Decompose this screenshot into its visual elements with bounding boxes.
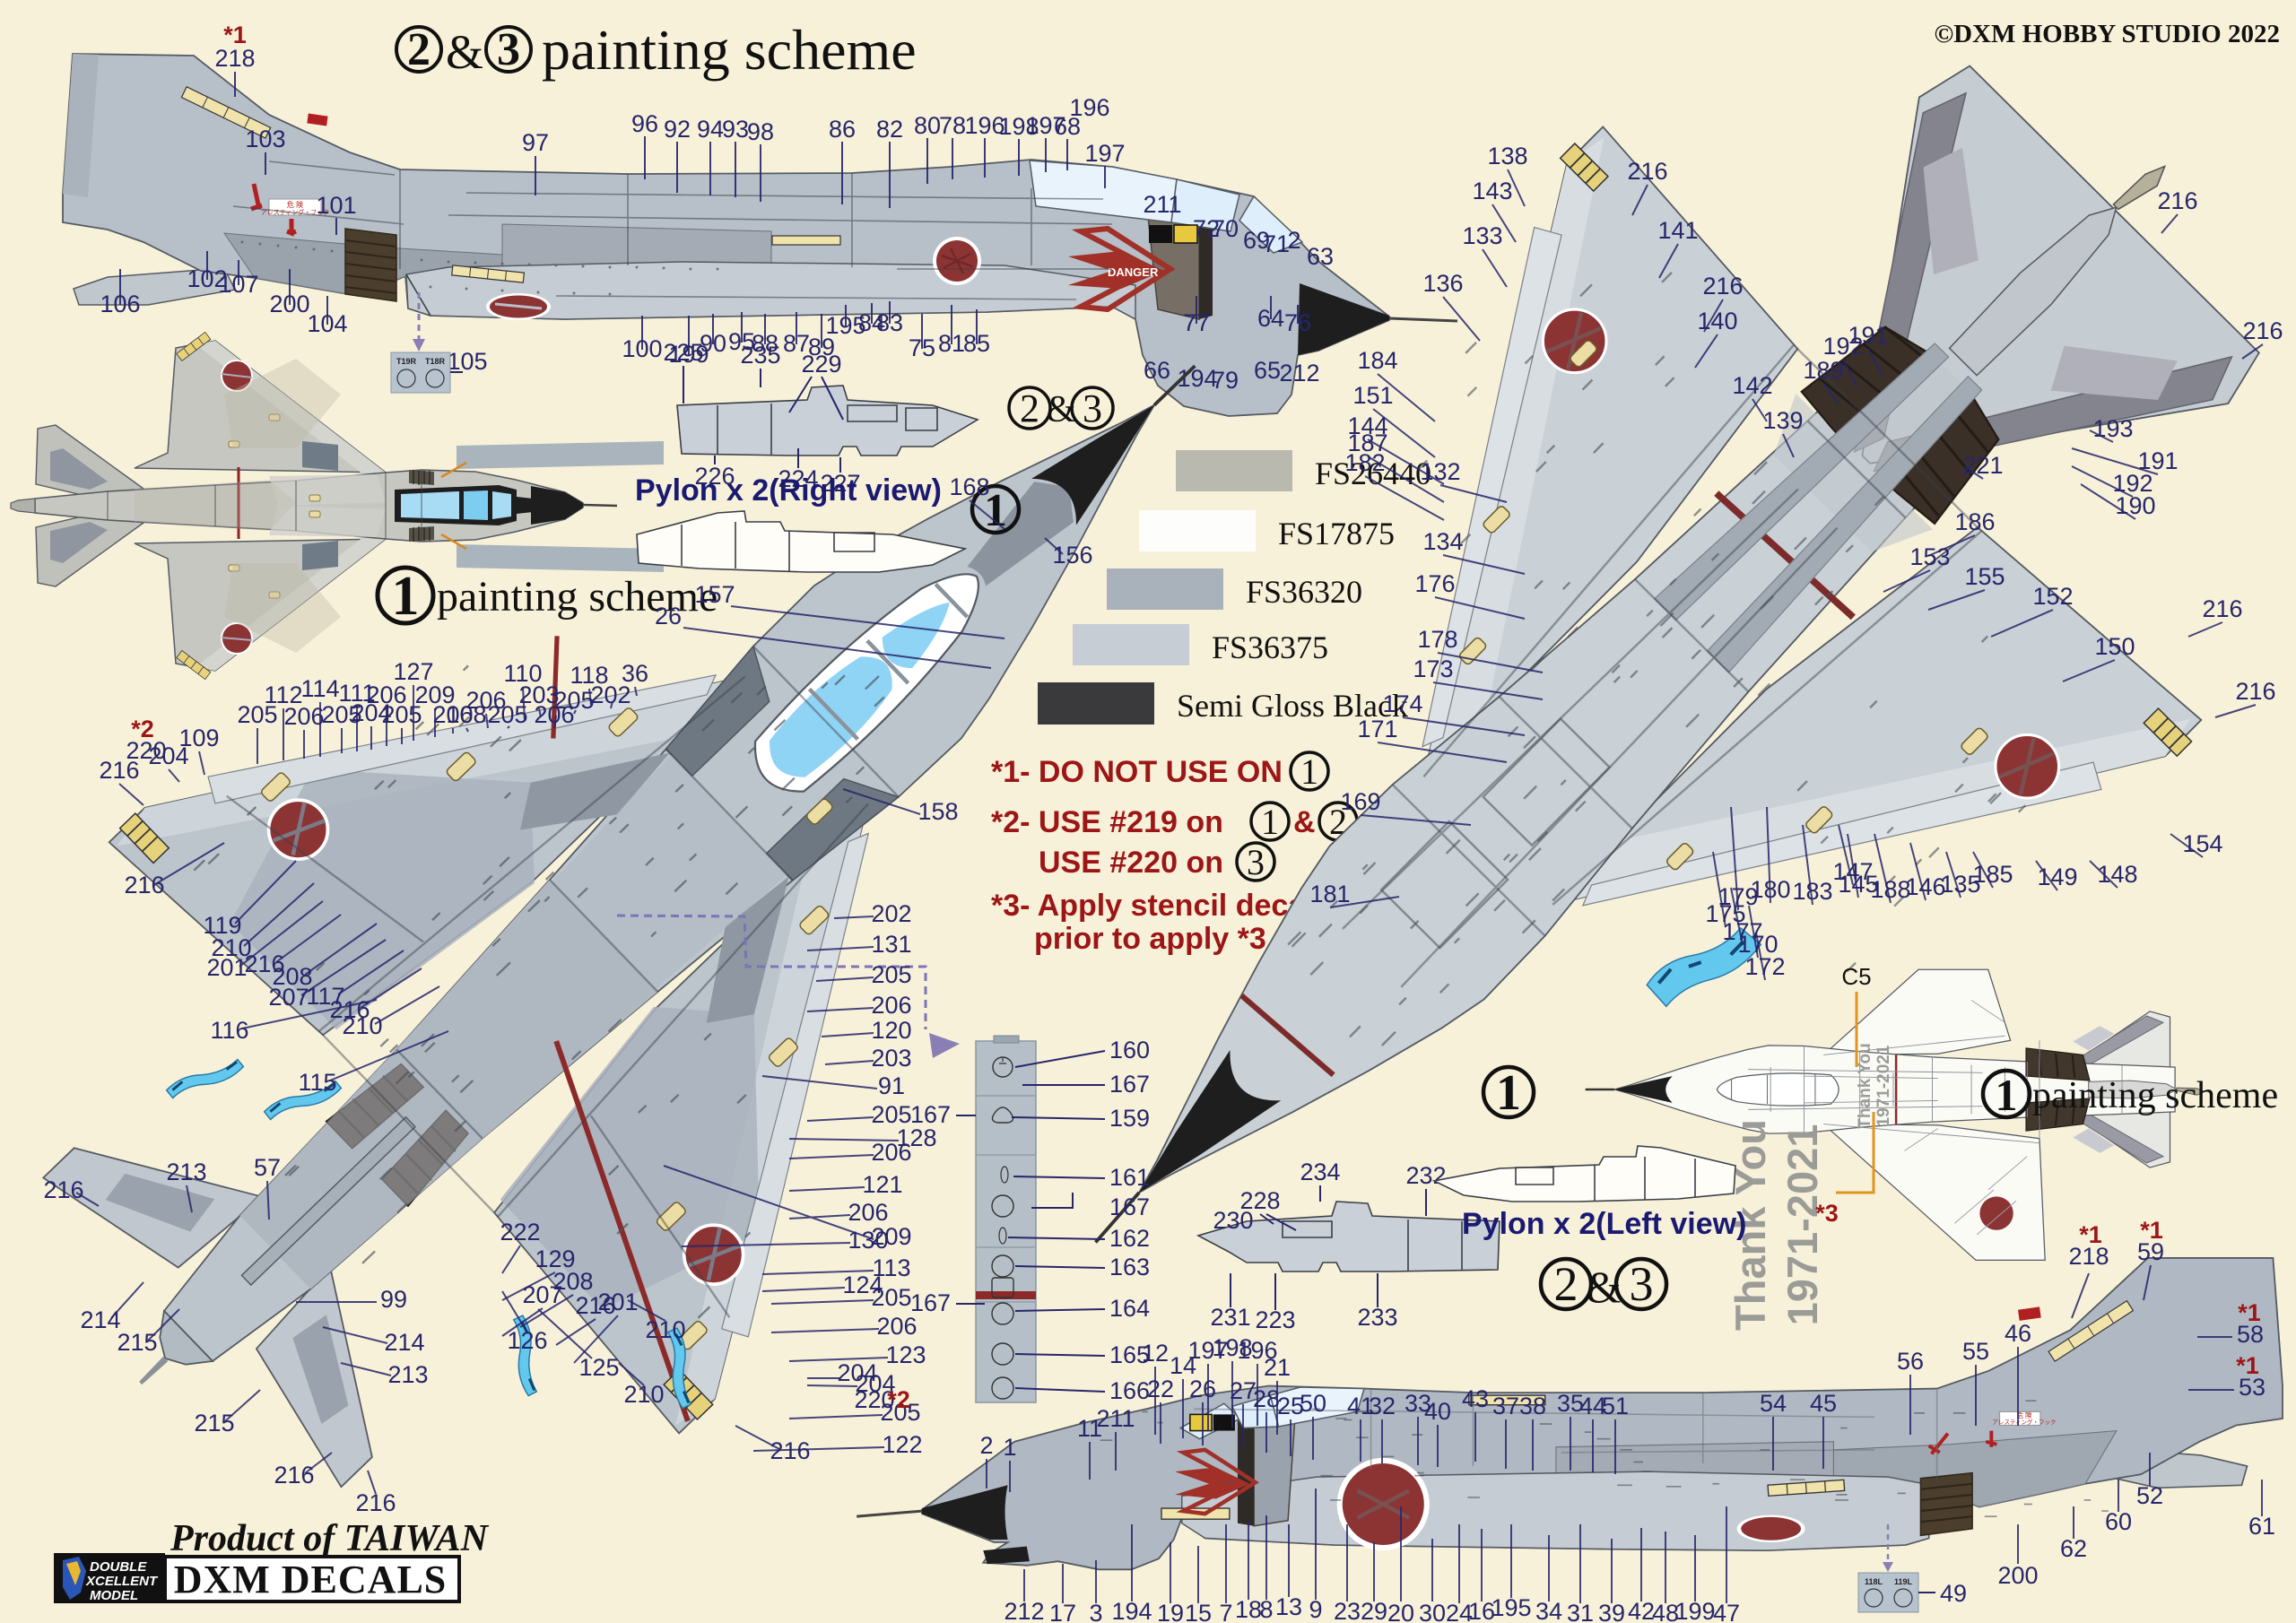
svg-text:214: 214: [80, 1306, 120, 1333]
svg-text:61: 61: [2248, 1513, 2275, 1540]
svg-text:&: &: [446, 25, 483, 79]
svg-text:196: 196: [1069, 94, 1109, 121]
svg-text:57: 57: [254, 1154, 281, 1181]
svg-text:189: 189: [1803, 357, 1843, 384]
svg-text:*3- Apply stencil decals: *3- Apply stencil decals: [991, 889, 1331, 923]
svg-text:168: 168: [949, 473, 989, 500]
svg-text:125: 125: [578, 1354, 619, 1381]
svg-text:2: 2: [1554, 1257, 1578, 1311]
svg-text:218: 218: [2068, 1243, 2109, 1270]
svg-text:154: 154: [2182, 830, 2222, 857]
svg-text:143: 143: [1472, 178, 1512, 204]
svg-text:174: 174: [1382, 690, 1422, 717]
svg-text:29: 29: [1361, 1598, 1387, 1623]
svg-text:229: 229: [801, 351, 841, 378]
svg-text:12: 12: [1142, 1340, 1169, 1367]
svg-text:&: &: [1293, 805, 1316, 839]
svg-text:135: 135: [1940, 871, 1980, 898]
svg-text:37: 37: [1492, 1393, 1519, 1419]
svg-text:150: 150: [2094, 633, 2135, 660]
svg-text:62: 62: [2060, 1535, 2087, 1562]
svg-text:166: 166: [1109, 1377, 1150, 1404]
svg-text:42: 42: [1628, 1598, 1655, 1623]
svg-text:118L: 118L: [1865, 1577, 1883, 1586]
svg-text:109: 109: [178, 725, 219, 751]
svg-text:206: 206: [283, 703, 324, 730]
svg-text:MODEL: MODEL: [90, 1588, 138, 1603]
svg-text:120: 120: [871, 1017, 911, 1044]
svg-text:146: 146: [1905, 873, 1945, 900]
svg-text:3: 3: [1630, 1257, 1654, 1311]
svg-text:191: 191: [1848, 322, 1888, 349]
svg-text:1: 1: [1496, 1065, 1521, 1121]
svg-text:169: 169: [1340, 788, 1380, 815]
svg-text:56: 56: [1897, 1348, 1924, 1375]
svg-text:23: 23: [1334, 1598, 1361, 1623]
svg-text:20: 20: [1387, 1600, 1414, 1623]
svg-text:55: 55: [1962, 1338, 1989, 1365]
svg-text:216: 216: [2202, 595, 2242, 622]
svg-text:167: 167: [1109, 1193, 1150, 1220]
svg-text:122: 122: [882, 1431, 922, 1458]
svg-text:204: 204: [837, 1359, 877, 1386]
svg-text:155: 155: [1964, 563, 2005, 590]
svg-text:FS36320: FS36320: [1246, 574, 1362, 610]
svg-text:139: 139: [1762, 407, 1803, 434]
svg-text:206: 206: [876, 1313, 917, 1340]
svg-text:235: 235: [740, 342, 780, 369]
svg-text:203: 203: [871, 1045, 911, 1072]
svg-text:Pylon x 2(Left view): Pylon x 2(Left view): [1462, 1207, 1746, 1241]
svg-text:167: 167: [1109, 1071, 1150, 1098]
svg-text:151: 151: [1352, 382, 1393, 409]
svg-text:211: 211: [1096, 1405, 1135, 1432]
svg-text:194: 194: [1111, 1598, 1152, 1623]
svg-text:216: 216: [43, 1176, 83, 1203]
svg-text:38: 38: [1519, 1393, 1546, 1419]
svg-text:91: 91: [878, 1072, 905, 1099]
svg-text:230: 230: [1213, 1207, 1253, 1234]
svg-text:45: 45: [1810, 1390, 1837, 1417]
svg-text:13: 13: [1275, 1593, 1302, 1620]
svg-text:34: 34: [1535, 1598, 1562, 1623]
svg-text:C5: C5: [1841, 963, 1871, 990]
svg-text:Pylon x 2(Right view): Pylon x 2(Right view): [635, 473, 942, 508]
svg-text:176: 176: [1414, 570, 1455, 597]
svg-text:163: 163: [1109, 1254, 1150, 1280]
svg-text:1: 1: [1300, 751, 1318, 792]
svg-text:199: 199: [1674, 1598, 1715, 1623]
svg-text:1: 1: [1003, 1434, 1016, 1461]
svg-text:46: 46: [2005, 1320, 2031, 1347]
svg-text:32: 32: [1369, 1393, 1396, 1419]
svg-text:21: 21: [1264, 1354, 1291, 1381]
svg-text:178: 178: [1417, 626, 1457, 653]
svg-text:63: 63: [1307, 243, 1334, 270]
svg-text:200: 200: [1997, 1562, 2038, 1589]
svg-text:116: 116: [210, 1017, 248, 1044]
svg-text:80: 80: [914, 112, 941, 139]
svg-text:128: 128: [896, 1124, 936, 1151]
svg-text:52: 52: [2136, 1482, 2163, 1509]
svg-text:93: 93: [722, 116, 749, 143]
svg-text:195: 195: [1491, 1594, 1531, 1621]
svg-text:140: 140: [1697, 308, 1737, 334]
svg-text:26: 26: [1189, 1376, 1216, 1402]
svg-text:197: 197: [1084, 140, 1125, 167]
svg-text:212: 212: [1279, 360, 1319, 386]
svg-text:162: 162: [1109, 1225, 1150, 1252]
svg-text:216: 216: [2235, 678, 2275, 705]
svg-text:94: 94: [697, 116, 724, 143]
svg-text:54: 54: [1760, 1390, 1787, 1417]
svg-text:171: 171: [1357, 716, 1397, 742]
svg-text:215: 215: [194, 1410, 234, 1436]
svg-text:212: 212: [1004, 1598, 1044, 1623]
svg-text:136: 136: [1422, 270, 1463, 297]
svg-text:186: 186: [1954, 508, 1995, 535]
svg-text:149: 149: [2037, 864, 2077, 890]
svg-text:3: 3: [1083, 386, 1102, 430]
svg-text:©DXM HOBBY STUDIO 2022: ©DXM HOBBY STUDIO 2022: [1934, 20, 2280, 48]
svg-text:FS36375: FS36375: [1212, 629, 1328, 665]
svg-text:T18R: T18R: [425, 357, 446, 366]
svg-text:2: 2: [407, 24, 430, 75]
svg-text:2: 2: [1287, 227, 1300, 254]
svg-text:142: 142: [1732, 372, 1772, 399]
svg-text:59: 59: [2137, 1238, 2164, 1265]
svg-text:FS17875: FS17875: [1278, 516, 1395, 551]
svg-text:50: 50: [1300, 1390, 1326, 1417]
svg-text:206: 206: [871, 992, 911, 1019]
svg-text:49: 49: [1940, 1580, 1967, 1607]
svg-text:アレスティング・フック: アレスティング・フック: [1992, 1418, 2056, 1426]
svg-text:141: 141: [1657, 217, 1698, 244]
svg-text:99: 99: [380, 1286, 407, 1313]
svg-text:*3: *3: [1815, 1200, 1839, 1227]
svg-text:231: 231: [1210, 1304, 1250, 1331]
svg-text:121: 121: [862, 1171, 902, 1198]
svg-text:8: 8: [1259, 1596, 1273, 1623]
svg-text:危 険: 危 険: [287, 200, 303, 209]
svg-text:40: 40: [1424, 1398, 1451, 1425]
svg-text:9: 9: [1309, 1596, 1322, 1623]
svg-text:65: 65: [1254, 357, 1281, 384]
svg-text:USE #220 on: USE #220 on: [1039, 846, 1223, 880]
svg-text:2: 2: [1020, 386, 1039, 430]
svg-text:101: 101: [316, 192, 356, 219]
svg-text:103: 103: [245, 126, 285, 152]
svg-text:71: 71: [1263, 230, 1290, 257]
svg-text:211: 211: [1143, 191, 1181, 218]
svg-text:133: 133: [1462, 222, 1502, 249]
svg-text:79: 79: [1212, 367, 1239, 394]
svg-text:66: 66: [1144, 357, 1170, 384]
svg-text:213: 213: [387, 1361, 428, 1388]
svg-text:190: 190: [2115, 492, 2155, 519]
svg-text:216: 216: [124, 872, 164, 898]
svg-text:Product of TAIWAN: Product of TAIWAN: [170, 1518, 490, 1559]
svg-text:92: 92: [664, 116, 691, 143]
svg-text:*2- USE #219 on: *2- USE #219 on: [991, 805, 1223, 839]
svg-text:193: 193: [2092, 415, 2133, 442]
svg-text:205: 205: [871, 961, 911, 988]
svg-text:58: 58: [2237, 1321, 2264, 1348]
svg-text:216: 216: [2157, 187, 2197, 214]
svg-text:3: 3: [497, 24, 520, 75]
svg-text:1: 1: [392, 566, 420, 627]
svg-text:*1- DO NOT USE ON: *1- DO NOT USE ON: [991, 755, 1283, 789]
svg-text:60: 60: [2105, 1508, 2132, 1535]
svg-text:78: 78: [939, 112, 966, 139]
svg-text:210: 210: [342, 1012, 382, 1039]
svg-text:DOUBLE: DOUBLE: [90, 1559, 147, 1575]
svg-text:DANGER: DANGER: [1108, 265, 1159, 279]
svg-text:26: 26: [655, 603, 682, 629]
svg-text:216: 216: [1627, 158, 1667, 185]
svg-text:161: 161: [1109, 1164, 1150, 1191]
svg-text:157: 157: [694, 581, 735, 608]
svg-text:96: 96: [631, 110, 658, 137]
svg-text:233: 233: [1357, 1304, 1397, 1331]
svg-text:70: 70: [1212, 215, 1239, 242]
svg-text:1971-2021: 1971-2021: [1874, 1045, 1893, 1126]
svg-text:painting scheme: painting scheme: [2032, 1075, 2278, 1116]
svg-text:158: 158: [918, 798, 958, 825]
svg-text:painting scheme: painting scheme: [542, 18, 917, 82]
svg-text:82: 82: [876, 116, 903, 143]
svg-text:222: 222: [500, 1219, 540, 1245]
svg-text:218: 218: [214, 45, 255, 72]
svg-text:98: 98: [747, 118, 774, 145]
svg-text:1: 1: [1261, 802, 1279, 842]
svg-text:223: 223: [1255, 1306, 1295, 1333]
svg-text:202: 202: [871, 900, 911, 927]
svg-text:216: 216: [274, 1462, 314, 1488]
svg-text:124: 124: [842, 1271, 883, 1298]
svg-text:216: 216: [1702, 273, 1743, 299]
svg-text:36: 36: [622, 660, 648, 687]
svg-text:206: 206: [848, 1199, 888, 1226]
svg-text:53: 53: [2239, 1374, 2266, 1401]
svg-text:152: 152: [2032, 583, 2073, 610]
svg-text:115: 115: [298, 1069, 336, 1096]
svg-text:138: 138: [1487, 143, 1527, 169]
svg-text:216: 216: [2242, 317, 2283, 344]
svg-text:prior to apply *3: prior to apply *3: [1034, 922, 1266, 956]
svg-text:30: 30: [1419, 1600, 1446, 1623]
svg-text:114: 114: [300, 675, 339, 702]
svg-text:207: 207: [268, 984, 309, 1011]
svg-text:Thank You: Thank You: [1856, 1043, 1874, 1128]
svg-text:XCELLENT: XCELLENT: [85, 1574, 159, 1589]
svg-text:86: 86: [829, 116, 856, 143]
svg-text:232: 232: [1405, 1162, 1446, 1189]
svg-text:DXM DECALS: DXM DECALS: [174, 1558, 448, 1601]
svg-text:159: 159: [1109, 1105, 1150, 1132]
svg-text:97: 97: [522, 129, 549, 156]
svg-text:131: 131: [871, 931, 911, 958]
svg-text:164: 164: [1109, 1295, 1150, 1322]
svg-text:213: 213: [166, 1159, 206, 1185]
svg-text:160: 160: [1109, 1037, 1150, 1063]
svg-text:130: 130: [848, 1227, 888, 1254]
svg-text:205: 205: [553, 687, 594, 714]
svg-text:173: 173: [1413, 655, 1453, 682]
svg-text:2: 2: [979, 1432, 993, 1459]
svg-text:201: 201: [206, 954, 247, 981]
svg-text:119L: 119L: [1894, 1577, 1913, 1586]
svg-text:18: 18: [1235, 1596, 1262, 1623]
svg-text:22: 22: [1147, 1376, 1174, 1402]
svg-text:215: 215: [117, 1329, 157, 1356]
svg-text:1: 1: [1996, 1070, 2018, 1120]
svg-text:危 険: 危 険: [2016, 1410, 2032, 1419]
svg-text:43: 43: [1462, 1385, 1489, 1412]
svg-text:105: 105: [447, 348, 487, 375]
svg-text:181: 181: [1309, 881, 1350, 907]
svg-text:184: 184: [1357, 347, 1397, 374]
svg-text:123: 123: [885, 1341, 926, 1368]
svg-text:T19R: T19R: [396, 357, 417, 366]
svg-text:221: 221: [1962, 452, 2003, 479]
svg-text:156: 156: [1052, 542, 1092, 568]
svg-text:225: 225: [663, 339, 703, 366]
svg-text:214: 214: [384, 1329, 424, 1356]
svg-text:234: 234: [1300, 1159, 1340, 1185]
svg-text:153: 153: [1909, 543, 1950, 570]
svg-text:51: 51: [1602, 1393, 1629, 1419]
svg-text:3: 3: [1247, 842, 1265, 882]
svg-text:134: 134: [1422, 528, 1463, 555]
svg-text:*2: *2: [887, 1386, 910, 1413]
